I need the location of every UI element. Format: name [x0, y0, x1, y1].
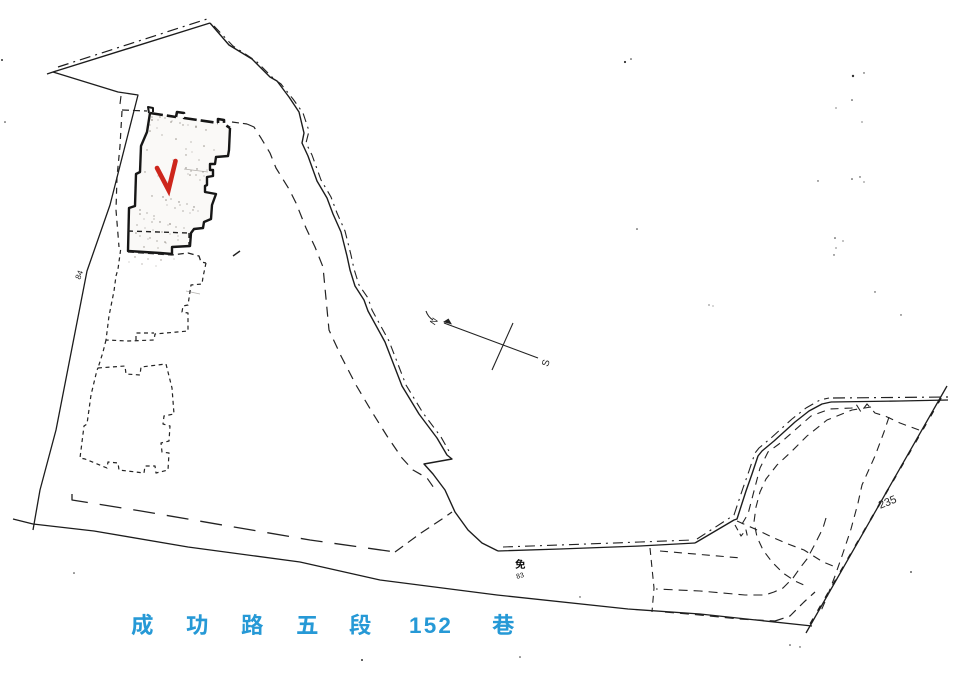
svg-text:152: 152: [409, 613, 453, 638]
